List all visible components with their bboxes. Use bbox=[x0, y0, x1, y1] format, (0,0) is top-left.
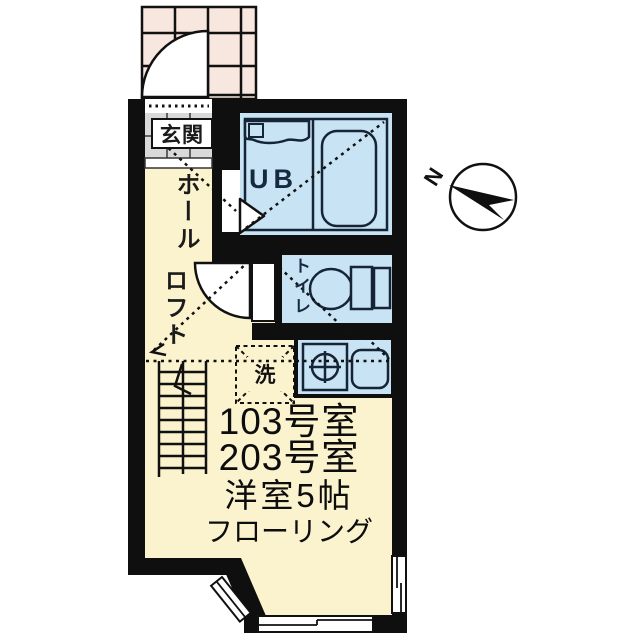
toilet-door-panel bbox=[252, 263, 275, 321]
toilet-bowl bbox=[310, 269, 352, 309]
unit-bath-label: UB bbox=[249, 164, 298, 195]
unit-bath-room bbox=[222, 113, 392, 235]
room-number-203: 203号室 bbox=[169, 440, 409, 476]
bathtub bbox=[322, 131, 376, 226]
room-number-103: 103号室 bbox=[169, 404, 409, 440]
floorplan-canvas: 玄関 ホール ロフト UB トイレ 洗 N 103号室 203号室 洋室5帖 フ… bbox=[0, 0, 640, 640]
right-wall-window bbox=[392, 556, 406, 613]
room-info-text: 103号室 203号室 洋室5帖 フローリング bbox=[169, 404, 409, 547]
washer-label: 洗 bbox=[247, 357, 283, 391]
toilet-label: トイレ bbox=[288, 257, 313, 317]
toilet-tank bbox=[351, 267, 372, 309]
entrance-label: 玄関 bbox=[151, 118, 213, 149]
loft-label: ロフト bbox=[156, 268, 191, 349]
compass-icon bbox=[449, 164, 516, 230]
kitchen-sink bbox=[352, 350, 388, 388]
kitchenette bbox=[294, 336, 395, 398]
bottom-wall-window bbox=[258, 616, 373, 632]
room-size: 洋室5帖 bbox=[169, 476, 409, 516]
entrance-threshold bbox=[145, 99, 212, 114]
hall-label: ホール bbox=[168, 172, 203, 253]
flooring-type: フローリング bbox=[169, 516, 409, 547]
